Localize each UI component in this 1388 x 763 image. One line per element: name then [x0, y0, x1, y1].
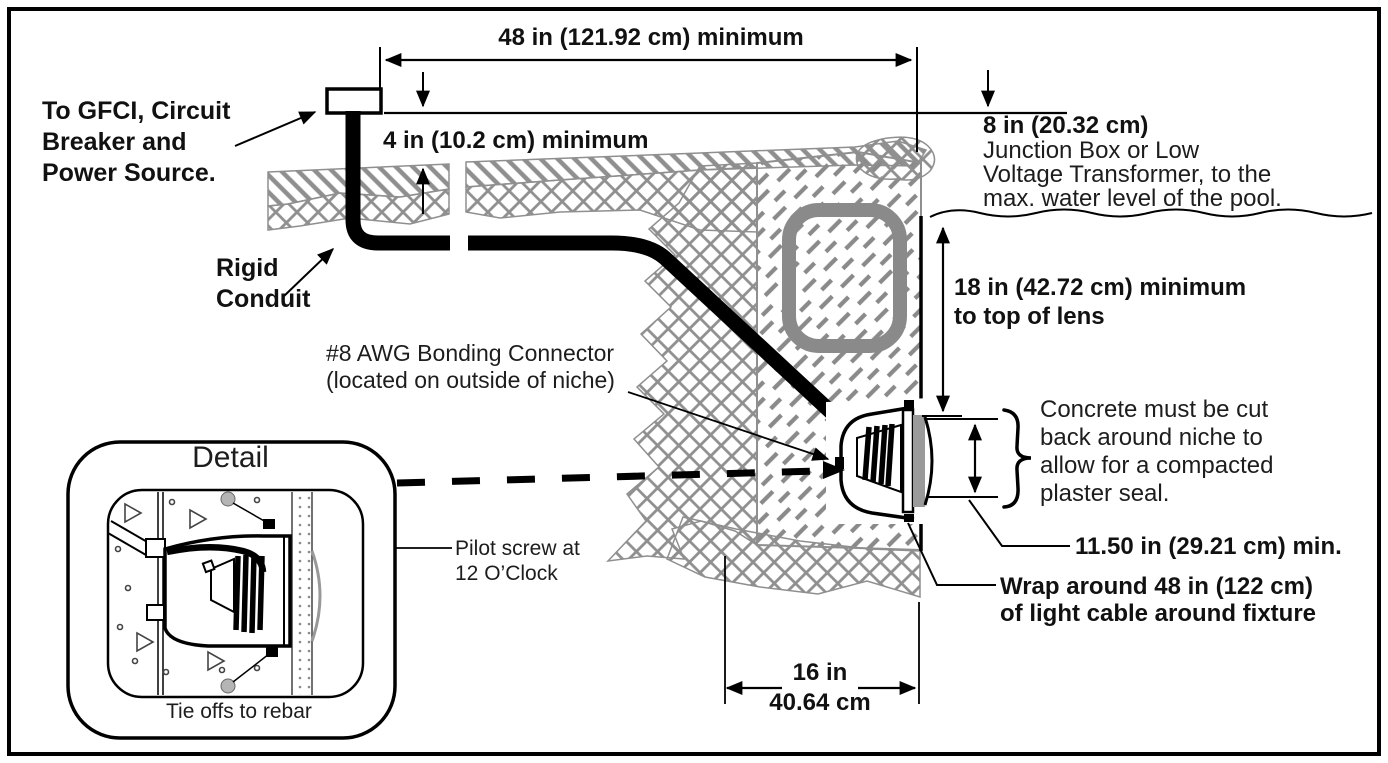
label-detail-title: Detail	[168, 444, 293, 471]
diagram-canvas: To GFCI, Circuit Breaker and Power Sourc…	[0, 0, 1388, 763]
label-dim-1150in: 11.50 in (29.21 cm) min.	[1075, 533, 1342, 560]
label-tie-offs: Tie offs to rebar	[166, 698, 312, 725]
label-bonding-connector: #8 AWG Bonding Connector (located on out…	[326, 340, 615, 394]
label-junction-box-description: Junction Box or Low Voltage Transformer,…	[983, 139, 1282, 211]
junction-box	[327, 89, 381, 113]
label-dim-18in-lens: 18 in (42.72 cm) minimum to top of lens	[954, 273, 1246, 331]
label-wrap-cable-note: Wrap around 48 in (122 cm) of light cabl…	[1000, 573, 1316, 627]
label-gfci-power-source: To GFCI, Circuit Breaker and Power Sourc…	[42, 96, 230, 189]
label-dim-8in-value: 8 in (20.32 cm)	[983, 112, 1148, 139]
gunite-column-crosshatch	[608, 163, 757, 561]
lens-bar	[913, 415, 925, 507]
curly-brace	[1004, 410, 1031, 507]
pilot-screw	[203, 561, 215, 573]
label-dim-16in-cm: 40.64 cm	[769, 689, 870, 716]
rebar-dot-bottom	[221, 679, 235, 693]
label-dim-16in: 16 in40.64 cm	[735, 658, 905, 718]
light-niche-fixture	[826, 398, 933, 524]
label-pilot-screw: Pilot screw at 12 O’Clock	[455, 536, 580, 586]
label-rigid-conduit: Rigid Conduit	[216, 253, 310, 315]
label-dim-48in: 48 in (121.92 cm) minimum	[430, 24, 872, 51]
detail-inset	[68, 442, 395, 738]
label-dim-4in: 4 in (10.2 cm) minimum	[383, 127, 648, 154]
wall-top-curl	[856, 137, 934, 180]
label-dim-16in-inches: 16 in	[793, 659, 848, 686]
label-concrete-note: Concrete must be cut back around niche t…	[1040, 396, 1273, 508]
faceplate	[903, 410, 913, 512]
rebar-dot-top	[221, 492, 235, 506]
plaster-stipple-band	[292, 492, 312, 695]
